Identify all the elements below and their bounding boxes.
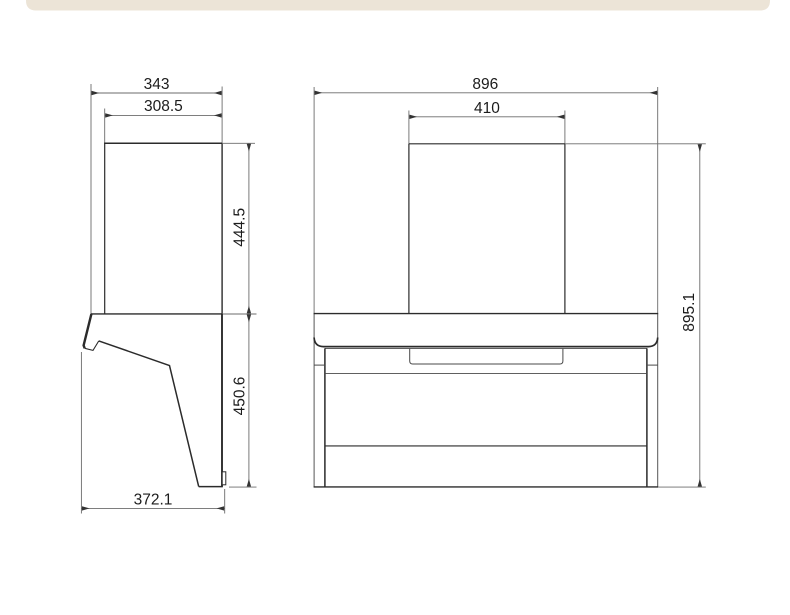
- svg-text:372.1: 372.1: [134, 491, 173, 508]
- svg-text:450.6: 450.6: [231, 377, 248, 416]
- svg-text:444.5: 444.5: [231, 208, 248, 247]
- svg-text:308.5: 308.5: [144, 98, 183, 115]
- svg-text:343: 343: [144, 76, 170, 93]
- svg-text:410: 410: [474, 100, 500, 117]
- svg-text:896: 896: [472, 76, 498, 93]
- svg-text:895.1: 895.1: [681, 293, 698, 332]
